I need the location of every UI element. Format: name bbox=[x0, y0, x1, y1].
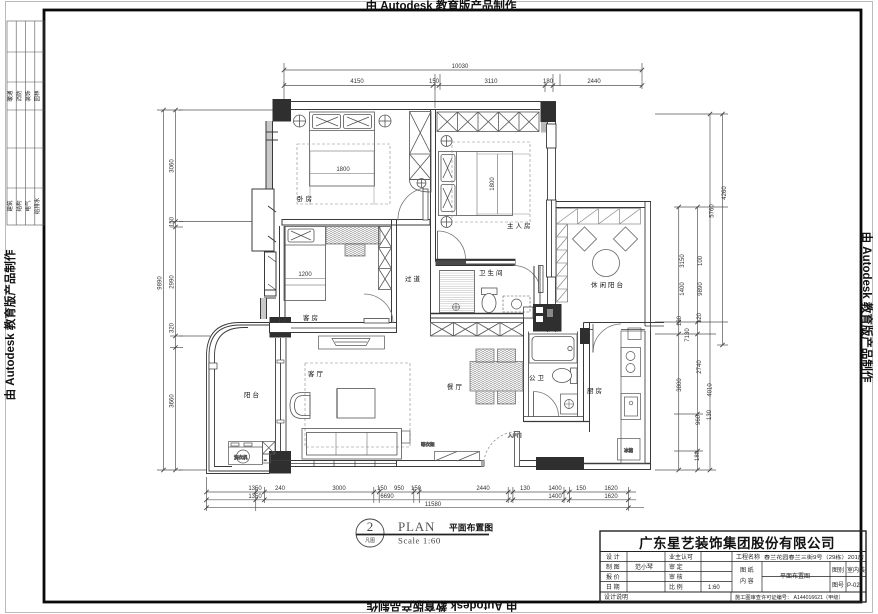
svg-text:凡图: 凡图 bbox=[365, 538, 375, 544]
svg-text:暖通: 暖通 bbox=[6, 90, 14, 102]
svg-text:施工图审查许可证编号： A144016621（甲级）: 施工图审查许可证编号： A144016621（甲级） bbox=[735, 593, 844, 601]
svg-text:建筑: 建筑 bbox=[6, 200, 14, 212]
svg-text:320: 320 bbox=[170, 322, 176, 333]
svg-text:130: 130 bbox=[707, 409, 713, 420]
svg-text:↔: ↔ bbox=[263, 457, 268, 462]
svg-text:180: 180 bbox=[695, 450, 701, 461]
svg-text:950: 950 bbox=[394, 486, 405, 492]
svg-text:10030: 10030 bbox=[452, 64, 469, 70]
svg-text:园林: 园林 bbox=[33, 90, 41, 102]
svg-text:由 Autodesk 教育版产品制作: 由 Autodesk 教育版产品制作 bbox=[860, 232, 874, 383]
svg-text:餐厅: 餐厅 bbox=[447, 382, 464, 391]
svg-text:5760: 5760 bbox=[710, 204, 716, 218]
svg-text:主人房: 主人房 bbox=[507, 221, 533, 230]
svg-text:1400: 1400 bbox=[680, 282, 686, 296]
svg-text:P-02: P-02 bbox=[847, 583, 860, 589]
svg-text:内 容: 内 容 bbox=[740, 577, 754, 585]
svg-text:图别: 图别 bbox=[832, 566, 844, 574]
svg-text:1350: 1350 bbox=[248, 486, 262, 492]
svg-text:设计说明: 设计说明 bbox=[604, 593, 628, 601]
svg-text:冰箱: 冰箱 bbox=[624, 447, 633, 454]
svg-text:装饰: 装饰 bbox=[24, 90, 32, 102]
svg-text:3000: 3000 bbox=[332, 486, 346, 492]
svg-text:结构: 结构 bbox=[15, 200, 23, 212]
svg-text:3060: 3060 bbox=[170, 159, 176, 173]
svg-text:厨房: 厨房 bbox=[587, 386, 604, 395]
svg-text:室内装: 室内装 bbox=[847, 566, 865, 574]
svg-text:给排水: 给排水 bbox=[33, 197, 41, 214]
svg-text:6690: 6690 bbox=[380, 494, 394, 500]
svg-text:洗衣机: 洗衣机 bbox=[234, 454, 248, 461]
svg-text:电气: 电气 bbox=[24, 200, 32, 212]
svg-text:由 Autodesk 教育版产品制作: 由 Autodesk 教育版产品制作 bbox=[366, 0, 517, 13]
svg-text:审 核: 审 核 bbox=[669, 573, 683, 581]
svg-text:范小琴: 范小琴 bbox=[635, 563, 653, 571]
svg-text:广东星艺装饰集团股份有限公司: 广东星艺装饰集团股份有限公司 bbox=[639, 535, 835, 551]
svg-text:150: 150 bbox=[377, 486, 388, 492]
svg-text:4010: 4010 bbox=[708, 383, 714, 397]
svg-text:公卫: 公卫 bbox=[529, 374, 546, 382]
svg-text:卫生间: 卫生间 bbox=[479, 268, 505, 277]
svg-text:过道: 过道 bbox=[405, 274, 422, 283]
svg-text:150: 150 bbox=[170, 216, 176, 227]
svg-text:130: 130 bbox=[520, 486, 531, 492]
svg-text:1400: 1400 bbox=[548, 494, 562, 500]
svg-text:4260: 4260 bbox=[722, 186, 728, 200]
svg-text:比 例: 比 例 bbox=[669, 583, 683, 591]
svg-text:1800: 1800 bbox=[336, 167, 350, 173]
svg-text:1620: 1620 bbox=[604, 486, 618, 492]
svg-text:客房: 客房 bbox=[303, 313, 320, 322]
svg-text:晾衣架: 晾衣架 bbox=[421, 441, 435, 448]
svg-text:2440: 2440 bbox=[587, 79, 601, 85]
svg-text:设 计: 设 计 bbox=[606, 553, 620, 561]
svg-text:11580: 11580 bbox=[425, 502, 442, 508]
svg-text:卧房: 卧房 bbox=[297, 194, 314, 203]
svg-text:客厅: 客厅 bbox=[308, 369, 325, 378]
svg-text:2740: 2740 bbox=[697, 360, 703, 374]
svg-text:平面布置图: 平面布置图 bbox=[780, 572, 810, 580]
svg-text:入户门: 入户门 bbox=[508, 432, 522, 439]
svg-text:3800: 3800 bbox=[677, 378, 683, 392]
svg-text:2: 2 bbox=[367, 519, 374, 534]
svg-text:960: 960 bbox=[696, 414, 702, 425]
svg-text:PLAN: PLAN bbox=[398, 519, 435, 534]
svg-text:3150: 3150 bbox=[680, 254, 686, 268]
svg-text:图 纸: 图 纸 bbox=[740, 566, 754, 574]
svg-text:平面布置图: 平面布置图 bbox=[449, 522, 493, 533]
svg-text:150: 150 bbox=[576, 486, 587, 492]
svg-text:9890: 9890 bbox=[698, 282, 704, 296]
svg-text:2440: 2440 bbox=[476, 486, 490, 492]
svg-text:1350: 1350 bbox=[248, 494, 262, 500]
svg-text:由 Autodesk 教育版产品制作: 由 Autodesk 教育版产品制作 bbox=[3, 249, 17, 400]
svg-text:阳台: 阳台 bbox=[244, 390, 261, 399]
svg-text:9890: 9890 bbox=[158, 276, 164, 290]
svg-text:业主认可: 业主认可 bbox=[669, 553, 693, 561]
svg-text:4150: 4150 bbox=[350, 79, 364, 85]
svg-text:制 图: 制 图 bbox=[606, 563, 620, 571]
svg-text:240: 240 bbox=[275, 486, 286, 492]
svg-text:报 价: 报 价 bbox=[606, 573, 620, 581]
svg-text:春兰花园春兰三街9号（29栋）201房: 春兰花园春兰三街9号（29栋）201房 bbox=[764, 553, 864, 561]
svg-text:由 Autodesk 教育版产品制作: 由 Autodesk 教育版产品制作 bbox=[366, 599, 517, 613]
svg-text:3660: 3660 bbox=[170, 394, 176, 408]
svg-text:3110: 3110 bbox=[485, 79, 499, 85]
svg-text:图号: 图号 bbox=[832, 582, 844, 589]
svg-text:2990: 2990 bbox=[170, 275, 176, 289]
svg-text:100: 100 bbox=[698, 255, 704, 266]
svg-text:1800: 1800 bbox=[490, 177, 496, 191]
svg-text:审 定: 审 定 bbox=[669, 563, 683, 571]
svg-text:1:60: 1:60 bbox=[708, 585, 720, 591]
svg-text:工程名称: 工程名称 bbox=[736, 553, 760, 561]
svg-text:日 期: 日 期 bbox=[606, 583, 620, 591]
svg-text:1620: 1620 bbox=[604, 494, 618, 500]
svg-text:消防: 消防 bbox=[15, 90, 23, 102]
svg-text:休闲阳台: 休闲阳台 bbox=[591, 280, 625, 289]
svg-text:180: 180 bbox=[543, 79, 554, 85]
svg-text:1400: 1400 bbox=[548, 486, 562, 492]
svg-text:Scale 1:60: Scale 1:60 bbox=[398, 536, 441, 546]
svg-text:7130: 7130 bbox=[685, 328, 691, 342]
svg-text:1200: 1200 bbox=[298, 272, 312, 278]
